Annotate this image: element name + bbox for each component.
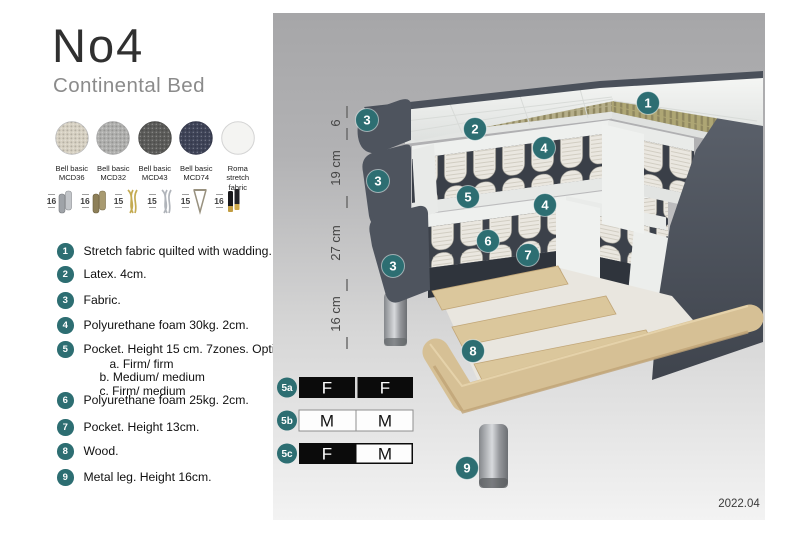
firmness-row-5c: 5c F M <box>277 443 413 464</box>
svg-text:3: 3 <box>389 259 396 274</box>
feature-option-a: a. Firm/ firm <box>110 358 292 370</box>
diagram-panel: 6 19 cm 27 cm 16 cm 1 2 3 4 <box>273 13 765 520</box>
firmness-cell: M <box>320 412 334 431</box>
dimension-label-leg: 16 cm <box>328 296 343 331</box>
callout-4-lower: 4 <box>534 194 557 217</box>
svg-text:4: 4 <box>541 198 549 213</box>
feature-item-6: 6 Polyurethane foam 25kg. 2cm. <box>57 392 249 409</box>
feature-text: Fabric. <box>74 292 121 308</box>
dimension-label-box: 27 cm <box>328 225 343 260</box>
svg-text:8: 8 <box>469 344 476 359</box>
feature-number-badge: 4 <box>57 317 74 334</box>
callout-9: 9 <box>456 457 479 480</box>
svg-text:7: 7 <box>524 248 531 263</box>
firmness-id: 5b <box>281 416 293 427</box>
firmness-cell: F <box>322 379 332 398</box>
callout-7: 7 <box>517 244 540 267</box>
feature-number-badge: 2 <box>57 266 74 283</box>
dimension-ruler: 6 19 cm 27 cm 16 cm <box>328 106 347 349</box>
feature-number-badge: 3 <box>57 292 74 309</box>
dimension-label-topper: 6 <box>328 119 343 126</box>
callout-8: 8 <box>462 340 485 363</box>
firmness-row-5a: 5a F F <box>277 377 413 398</box>
callout-3-mattress: 3 <box>367 170 390 193</box>
bed-cutaway-illustration: 6 19 cm 27 cm 16 cm 1 2 3 4 <box>273 13 765 520</box>
callout-4-upper: 4 <box>533 137 556 160</box>
feature-text: Stretch fabric quilted with wadding. <box>74 243 272 259</box>
dimension-label-mattress: 19 cm <box>328 150 343 185</box>
svg-text:4: 4 <box>540 141 548 156</box>
version-stamp: 2022.04 <box>718 498 760 510</box>
feature-number-badge: 9 <box>57 469 74 486</box>
feature-item-2: 2 Latex. 4cm. <box>57 266 147 283</box>
callout-5: 5 <box>457 186 480 209</box>
feature-item-4: 4 Polyurethane foam 30kg. 2cm. <box>57 317 249 334</box>
feature-text: Wood. <box>74 443 119 459</box>
feature-list: 1 Stretch fabric quilted with wadding. 2… <box>0 0 270 533</box>
firmness-tables: 5a F F 5b M M 5c <box>277 377 413 464</box>
feature-number-badge: 7 <box>57 419 74 436</box>
feature-number-badge: 6 <box>57 392 74 409</box>
feature-text: Latex. 4cm. <box>74 266 147 282</box>
feature-text: Pocket. Height 13cm. <box>74 419 200 435</box>
feature-item-3: 3 Fabric. <box>57 292 121 309</box>
feature-text: Polyurethane foam 25kg. 2cm. <box>74 392 249 408</box>
mattress-corner-board <box>602 124 644 234</box>
svg-text:6: 6 <box>484 234 491 249</box>
feature-text: Metal leg. Height 16cm. <box>74 469 212 485</box>
metal-leg-front <box>479 424 508 488</box>
callout-3-box: 3 <box>382 255 405 278</box>
firmness-row-5b: 5b M M <box>277 410 413 431</box>
callout-3-topper: 3 <box>356 109 379 132</box>
feature-item-8: 8 Wood. <box>57 443 119 460</box>
feature-option-b: b. Medium/ medium <box>100 371 292 383</box>
callout-2: 2 <box>464 118 487 141</box>
feature-number-badge: 8 <box>57 443 74 460</box>
feature-number-badge: 5 <box>57 341 74 358</box>
callout-6: 6 <box>477 230 500 253</box>
feature-item-7: 7 Pocket. Height 13cm. <box>57 419 199 436</box>
bed-infographic: No4 Continental Bed <box>0 0 800 533</box>
feature-item-9: 9 Metal leg. Height 16cm. <box>57 469 212 486</box>
firmness-cell: F <box>380 379 390 398</box>
feature-number-badge: 1 <box>57 243 74 260</box>
firmness-cell: M <box>378 445 392 464</box>
firmness-cell: M <box>378 412 392 431</box>
svg-text:1: 1 <box>644 96 651 111</box>
svg-text:2: 2 <box>471 122 478 137</box>
feature-text: Pocket. Height 15 cm. 7zones. Option: a.… <box>74 341 292 397</box>
svg-text:3: 3 <box>374 174 381 189</box>
firmness-id: 5c <box>281 449 293 460</box>
feature-item-5: 5 Pocket. Height 15 cm. 7zones. Option: … <box>57 341 291 397</box>
feature-item-1: 1 Stretch fabric quilted with wadding. <box>57 243 272 260</box>
svg-text:5: 5 <box>464 190 471 205</box>
svg-text:9: 9 <box>463 461 470 476</box>
feature-text: Polyurethane foam 30kg. 2cm. <box>74 317 249 333</box>
firmness-id: 5a <box>281 383 293 394</box>
firmness-cell: F <box>322 445 332 464</box>
callout-1: 1 <box>637 92 660 115</box>
svg-text:3: 3 <box>363 113 370 128</box>
